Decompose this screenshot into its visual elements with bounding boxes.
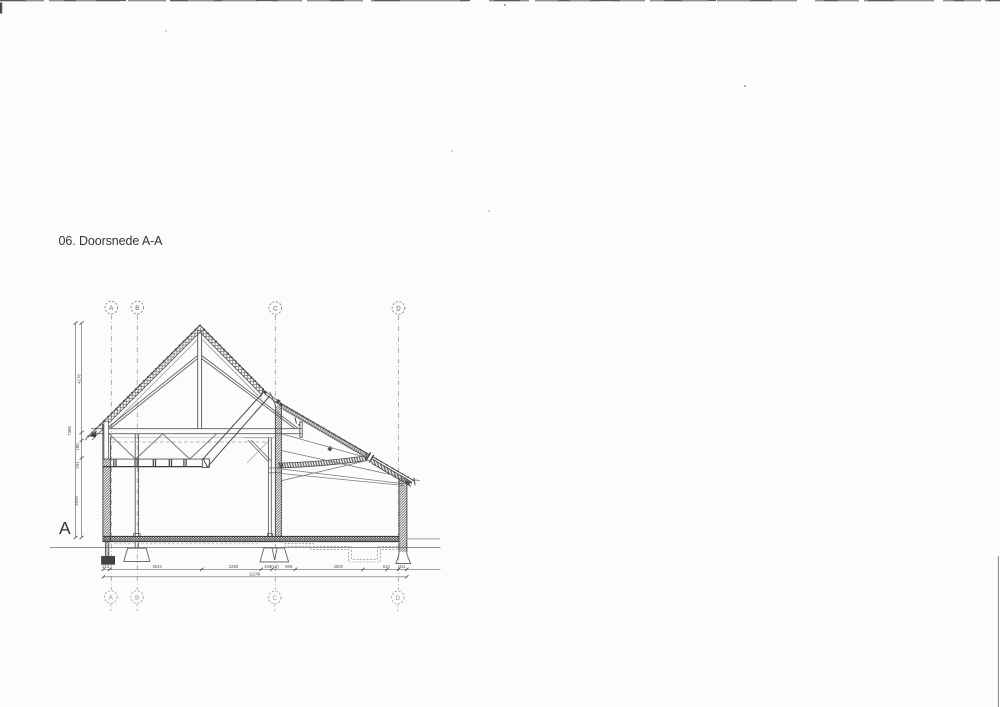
svg-text:A: A — [59, 518, 71, 538]
svg-text:B: B — [135, 595, 139, 602]
svg-text:180: 180 — [75, 443, 80, 451]
svg-text:2920: 2920 — [74, 496, 79, 506]
svg-text:2280: 2280 — [229, 564, 239, 569]
svg-text:C: C — [273, 306, 278, 313]
svg-text:11248: 11248 — [249, 572, 261, 577]
svg-text:D: D — [396, 306, 401, 313]
svg-text:910: 910 — [383, 564, 391, 569]
svg-text:7306: 7306 — [67, 426, 72, 436]
svg-text:291: 291 — [75, 461, 80, 469]
svg-text:216: 216 — [102, 564, 110, 569]
svg-text:311: 311 — [399, 564, 406, 569]
svg-text:909: 909 — [285, 564, 293, 569]
svg-text:C: C — [272, 595, 277, 602]
svg-text:06. Doorsnede A-A: 06. Doorsnede A-A — [59, 234, 164, 248]
svg-text:B: B — [135, 305, 139, 312]
svg-text:3544: 3544 — [152, 564, 162, 569]
svg-text:4178: 4178 — [76, 374, 81, 384]
svg-text:D: D — [396, 595, 401, 602]
svg-text:409(14): 409(14) — [264, 564, 279, 569]
svg-text:2600: 2600 — [334, 564, 344, 569]
